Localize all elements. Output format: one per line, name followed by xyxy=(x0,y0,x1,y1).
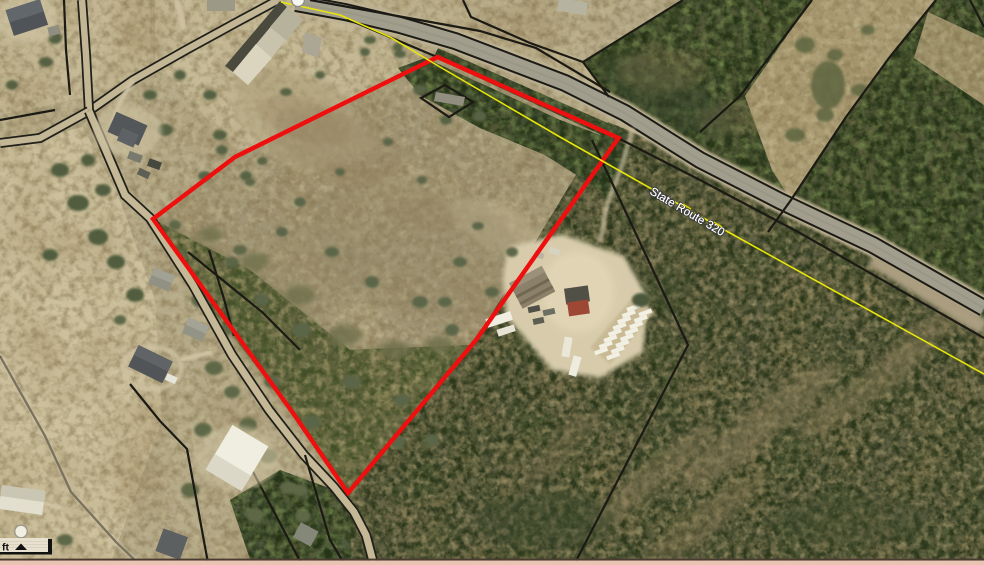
svg-text:ft: ft xyxy=(2,542,9,554)
